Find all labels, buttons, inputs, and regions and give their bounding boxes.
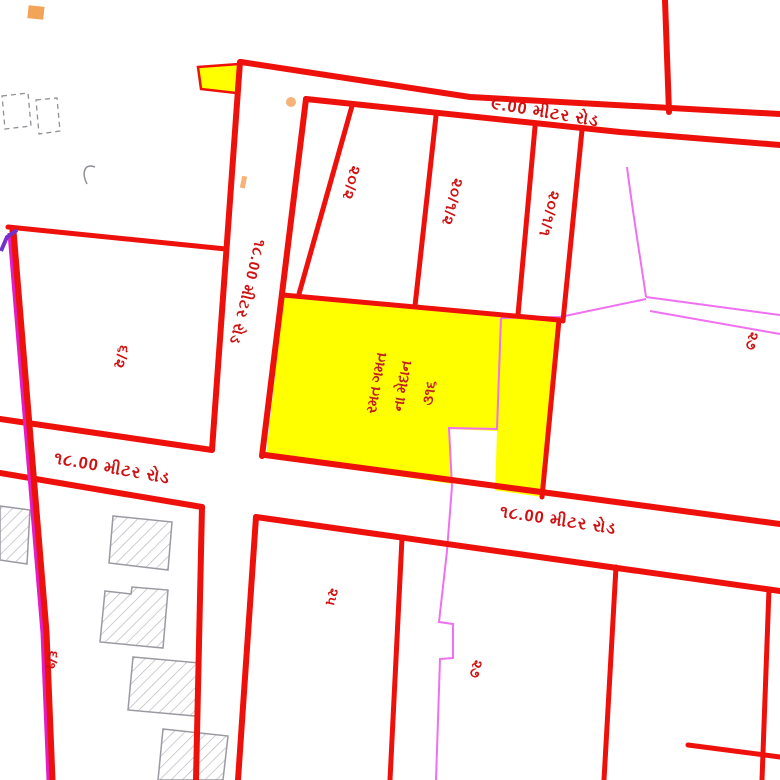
plot-row-left-edge xyxy=(299,106,352,294)
road-ns-right-lower xyxy=(238,517,256,780)
plot-divider-2 xyxy=(518,127,535,315)
orange-marker-tick xyxy=(240,176,247,189)
scheme-line-south xyxy=(436,551,453,780)
building-footprint xyxy=(158,729,228,780)
plot-6-2-top-edge xyxy=(8,227,226,249)
highlighted-plot-fill xyxy=(266,296,558,497)
building-footprint xyxy=(109,516,172,570)
map-line-work xyxy=(0,0,780,780)
boundary-magenta-overlay xyxy=(9,233,48,780)
road-ns-left-upper xyxy=(212,62,240,450)
cadastral-map-sheet: ૯.00 મીટર રોડ ૧૮.00 મીટર રોડ ૧૮.00 મીટર … xyxy=(0,0,780,780)
dashed-building-outlines xyxy=(2,93,60,134)
south-plot-divider-1 xyxy=(390,538,402,780)
road-stub-top-right xyxy=(665,0,669,112)
plot-divider-1 xyxy=(415,116,436,306)
south-plot-divider-2 xyxy=(604,567,616,780)
building-footprint xyxy=(100,587,168,648)
building-footprint xyxy=(0,506,30,564)
road-south-bottom-edge xyxy=(256,517,780,591)
plot-divider-3 xyxy=(563,130,582,321)
orange-marker-dot xyxy=(286,97,296,107)
yellow-sliver-top xyxy=(198,64,239,93)
south-plot-horizontal xyxy=(688,745,780,757)
scheme-line-east-a xyxy=(646,297,780,315)
map-squiggle-mark xyxy=(84,166,95,184)
building-footprint xyxy=(128,657,200,716)
orange-markers xyxy=(27,5,296,188)
scheme-line-east-b xyxy=(650,311,780,334)
orange-marker-square xyxy=(27,5,44,20)
scheme-curve-east xyxy=(627,167,646,297)
south-plot-divider-3 xyxy=(762,589,769,780)
